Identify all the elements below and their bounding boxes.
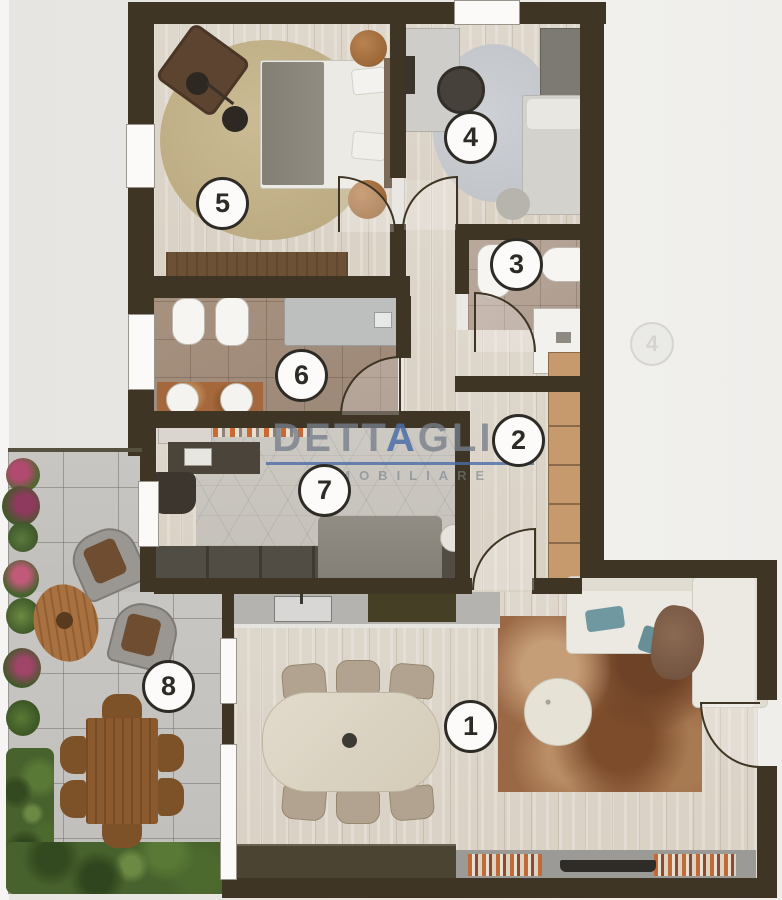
room-badge-7-label: 7	[317, 475, 332, 506]
wall-living-top-right	[590, 560, 777, 578]
room-badge-1: 1	[444, 700, 497, 753]
wall-right-upper	[580, 2, 604, 578]
room5-bed-blanket	[262, 62, 324, 185]
wall-room3-bottom	[455, 376, 604, 392]
wall-room7-bottom	[154, 578, 472, 594]
room-badge-3: 3	[490, 238, 543, 291]
room-badge-5-label: 5	[215, 188, 230, 219]
terrace-flowerpot-3	[8, 522, 38, 552]
glass-door-terrace-1	[220, 638, 237, 704]
wall-room3-left	[455, 238, 469, 294]
terrace-chair-right-2	[158, 778, 184, 816]
tv-screen	[560, 860, 656, 872]
room4-office-chair	[437, 66, 485, 114]
room-badge-4: 4	[444, 111, 497, 164]
wall-living-right-upper	[757, 560, 777, 700]
terrace-chair-top	[102, 694, 142, 720]
terrace-dining-table	[86, 718, 158, 824]
tv-unit-books-right	[654, 854, 736, 876]
ghost-badge-4: 4	[630, 322, 674, 366]
room-badge-5: 5	[196, 177, 249, 230]
terrace-flowerpot-2	[2, 486, 40, 526]
wall-top	[128, 2, 606, 24]
window-top	[454, 0, 520, 25]
room-badge-6-label: 6	[294, 360, 309, 391]
room5-dresser	[166, 252, 348, 278]
wall-living-bottom	[222, 878, 777, 898]
wall-room5-room4-divider	[390, 2, 406, 178]
room-badge-2: 2	[492, 414, 545, 467]
living-pouf	[524, 678, 592, 746]
dining-table-vase	[342, 733, 357, 748]
room-badge-6: 6	[275, 349, 328, 402]
room7-bed	[318, 516, 442, 578]
glass-door-terrace-2	[220, 744, 237, 880]
terrace-chair-left-1	[60, 736, 86, 774]
wall-living-right-lower	[757, 766, 777, 882]
room-badge-8-label: 8	[161, 671, 176, 702]
wall-hall-bottom-stub	[532, 578, 582, 594]
dining-chair-2	[336, 660, 380, 694]
brand-letter-a: A	[386, 416, 418, 460]
terrace-chair-left-2	[60, 780, 86, 818]
room4-stool	[496, 188, 530, 220]
room5-nightstand-top	[350, 30, 387, 67]
window-left-bedroom7	[138, 481, 159, 547]
kitchen-sink	[274, 596, 332, 622]
wall-room5-room6	[128, 276, 410, 298]
terrace-flowerpot-4	[3, 560, 39, 598]
window-left-bedroom5	[126, 124, 155, 188]
terrace-flowerpot-7	[6, 700, 40, 736]
brand-word-part1: DETT	[272, 416, 385, 460]
room-badge-2-label: 2	[511, 425, 526, 456]
wall-living-left-seg1	[222, 592, 234, 640]
room-badge-3-label: 3	[509, 249, 524, 280]
wall-room6-right	[396, 296, 411, 358]
terrace-flowerpot-6	[3, 648, 41, 688]
terrace-chair-bottom	[102, 822, 142, 848]
wall-living-left-seg2	[222, 700, 234, 746]
room7-desk	[168, 442, 260, 474]
terrace-kettle	[56, 612, 73, 629]
ghost-badge-4-label: 4	[646, 331, 658, 357]
room3-shower-drain	[556, 332, 571, 343]
terrace-parapet-top	[8, 448, 142, 452]
room6-toilet	[172, 298, 205, 345]
wall-room4-room3	[455, 224, 604, 240]
window-left-bath6	[128, 314, 155, 390]
room-badge-8: 8	[142, 660, 195, 713]
room6-bathtub-drain	[374, 312, 392, 328]
room5-bed-pillow-2	[351, 131, 387, 162]
brand-subtitle: IMMOBILIARE	[250, 468, 550, 483]
terrace-hedge-bottom	[6, 842, 234, 894]
room6-bidet	[215, 297, 249, 346]
room5-floor-lamp-base	[222, 106, 248, 132]
room-badge-4-label: 4	[463, 122, 478, 153]
room4-monitor	[406, 56, 415, 94]
tv-unit-books-left	[468, 854, 542, 876]
room-badge-7: 7	[298, 464, 351, 517]
room7-laptop	[184, 448, 212, 466]
dining-chair-5	[336, 790, 380, 824]
room-badge-1-label: 1	[463, 711, 478, 742]
terrace-chair-right-1	[158, 734, 184, 772]
brand-underline	[266, 462, 534, 465]
room5-bed-pillow-1	[351, 66, 388, 95]
kitchen-cooktop	[368, 593, 456, 622]
floor-plan-canvas: DETTAGLIO IMMOBILIARE 1 2 3 4 5 6 7 8 4	[0, 0, 782, 900]
